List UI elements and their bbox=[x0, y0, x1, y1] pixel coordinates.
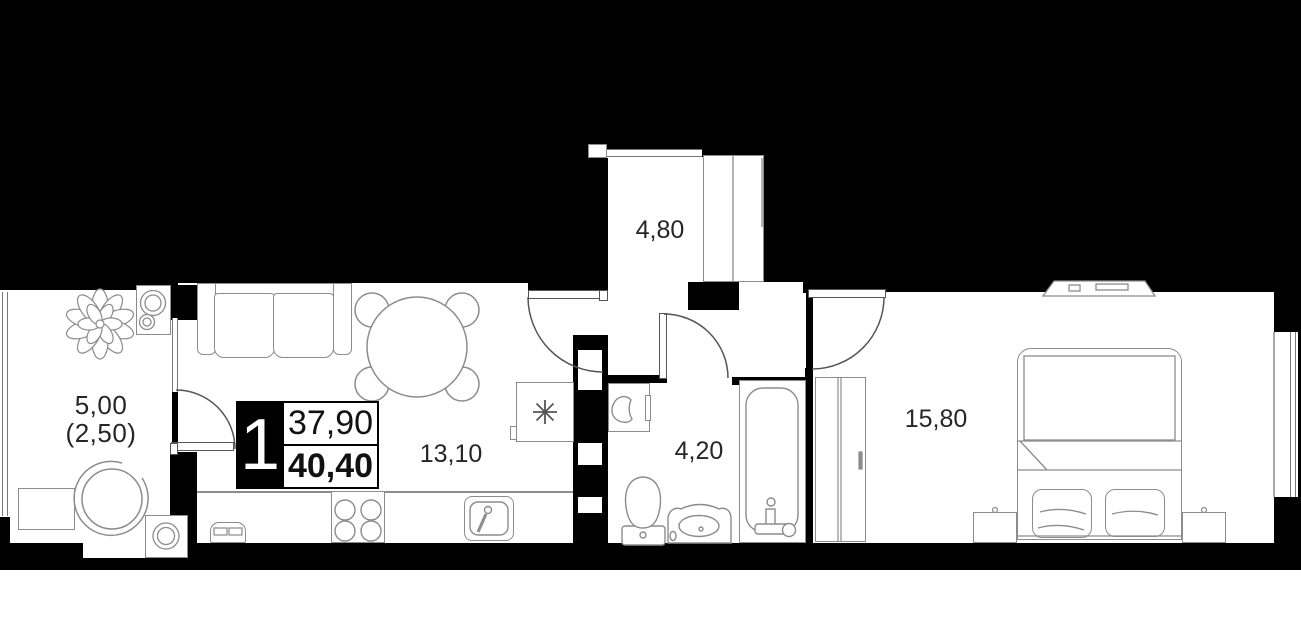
wall-balcony-notch bbox=[0, 517, 10, 543]
shaft-cell-1 bbox=[578, 350, 602, 390]
bathroom-area-label: 4,20 bbox=[649, 437, 749, 466]
floor-plan: 5,00 (2,50) 13,10 4,80 4,20 15,80 1 37,9… bbox=[0, 0, 1301, 630]
area-secondary: 40,40 bbox=[284, 446, 377, 487]
area-primary: 37,90 bbox=[284, 403, 377, 444]
balcony-table bbox=[18, 488, 75, 530]
rooms-count: 1 bbox=[238, 403, 282, 487]
pillow-right bbox=[1105, 489, 1165, 537]
wall-bedroom-east-lower bbox=[1274, 497, 1301, 545]
bedroom-window bbox=[1290, 332, 1296, 497]
wall-balcony-pier-top bbox=[170, 285, 197, 320]
hall-entrance-line bbox=[607, 149, 702, 157]
balcony-area-line1: 5,00 bbox=[75, 390, 128, 420]
washing-machine bbox=[145, 515, 188, 558]
balcony-door bbox=[171, 442, 234, 451]
unit-info-badge: 1 37,90 40,40 bbox=[236, 401, 379, 489]
kitchen-cabinet-hob bbox=[516, 382, 574, 442]
balcony-door-hinge bbox=[170, 443, 178, 455]
nightstand-right bbox=[1182, 512, 1226, 543]
balcony-area-line2: (2,50) bbox=[66, 418, 137, 448]
entrance-door bbox=[528, 290, 605, 299]
speaker-cabinet bbox=[136, 285, 171, 335]
wall-bedroom-west bbox=[805, 368, 813, 545]
entrance-door-hinge bbox=[599, 290, 608, 301]
sofa-armrest-right bbox=[333, 283, 352, 355]
bedroom-door bbox=[808, 289, 886, 298]
sofa-cushion-left bbox=[214, 293, 275, 358]
kitchen-appliance bbox=[210, 522, 246, 543]
wall-bottom bbox=[0, 543, 1301, 570]
sofa-cushion-right bbox=[273, 293, 334, 358]
bathroom-door bbox=[659, 313, 667, 379]
stove bbox=[331, 491, 385, 543]
balcony-area-label: 5,00 (2,50) bbox=[40, 391, 162, 447]
bottom-margin-band bbox=[0, 570, 1301, 630]
shaft-cell-3 bbox=[578, 497, 602, 513]
bathroom-cabinet-handle bbox=[645, 395, 651, 421]
pillow-left bbox=[1032, 489, 1092, 538]
bedroom-area-label: 15,80 bbox=[886, 405, 986, 434]
shaft-cell-2 bbox=[578, 443, 602, 465]
bathroom-sink-cabinet bbox=[608, 383, 650, 432]
kitchen-sink bbox=[464, 496, 514, 541]
entrance-threshold bbox=[588, 144, 607, 158]
wall-hall-west bbox=[598, 158, 608, 297]
room-balcony-step2 bbox=[83, 543, 145, 558]
hall-wardrobe bbox=[703, 155, 764, 282]
wall-corridor-chunk bbox=[688, 282, 739, 310]
balcony-window-west bbox=[2, 292, 8, 516]
kitchen-cabinet-handle bbox=[510, 426, 517, 440]
kitchen-counter-edge bbox=[197, 491, 573, 493]
wall-bathroom-top-left bbox=[601, 375, 667, 383]
bedroom-wardrobe bbox=[815, 377, 866, 542]
wall-bedroom-east-upper bbox=[1274, 282, 1301, 332]
kitchen-living-area-label: 13,10 bbox=[401, 440, 501, 469]
nightstand-left bbox=[973, 512, 1017, 543]
bathtub bbox=[739, 380, 806, 543]
hall-area-label: 4,80 bbox=[610, 216, 710, 245]
balcony-window-east bbox=[172, 318, 178, 392]
